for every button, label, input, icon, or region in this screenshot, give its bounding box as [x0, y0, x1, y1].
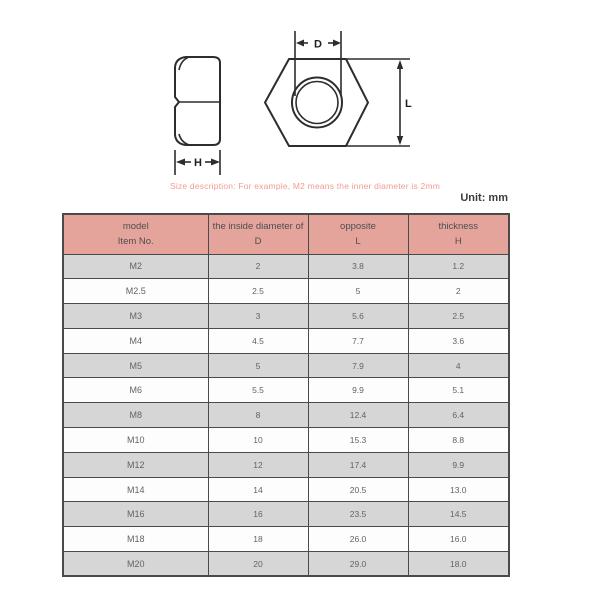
cell-h: 6.4: [408, 403, 509, 428]
cell-h: 18.0: [408, 552, 509, 577]
cell-h: 3.6: [408, 328, 509, 353]
cell-model: M12: [63, 452, 208, 477]
cell-d: 12: [208, 452, 308, 477]
table-row: M181826.016.0: [63, 527, 509, 552]
cell-d: 3: [208, 304, 308, 329]
header-inside-diameter-line2: D: [209, 236, 308, 247]
cell-model: M10: [63, 428, 208, 453]
cell-h: 1.2: [408, 254, 509, 279]
cell-l: 5.6: [308, 304, 408, 329]
arrow-left-icon: [296, 40, 304, 47]
spec-table: model Item No. the inside diameter of D …: [62, 213, 510, 577]
cell-d: 10: [208, 428, 308, 453]
cell-h: 9.9: [408, 452, 509, 477]
header-model-line2: Item No.: [64, 236, 208, 247]
table-row: M44.57.73.6: [63, 328, 509, 353]
cell-model: M4: [63, 328, 208, 353]
cell-d: 2.5: [208, 279, 308, 304]
cell-model: M16: [63, 502, 208, 527]
h-dimension-label: H: [194, 157, 202, 169]
header-inside-diameter-line1: the inside diameter of: [209, 221, 308, 232]
cell-model: M2.5: [63, 279, 208, 304]
cell-d: 8: [208, 403, 308, 428]
cell-model: M18: [63, 527, 208, 552]
cell-l: 23.5: [308, 502, 408, 527]
cell-h: 4: [408, 353, 509, 378]
cell-h: 5.1: [408, 378, 509, 403]
table-row: M223.81.2: [63, 254, 509, 279]
header-model-line1: model: [64, 221, 208, 232]
hole-inner-circle: [296, 82, 338, 124]
unit-label: Unit: mm: [460, 192, 508, 204]
nut-front-view: [265, 59, 368, 146]
cell-h: 14.5: [408, 502, 509, 527]
cell-h: 8.8: [408, 428, 509, 453]
cell-l: 9.9: [308, 378, 408, 403]
cell-l: 17.4: [308, 452, 408, 477]
table-row: M8812.46.4: [63, 403, 509, 428]
cell-d: 18: [208, 527, 308, 552]
cell-h: 16.0: [408, 527, 509, 552]
d-dimension-label: D: [314, 39, 322, 51]
arrow-right-icon: [333, 40, 341, 47]
table-row: M141420.513.0: [63, 477, 509, 502]
cell-d: 20: [208, 552, 308, 577]
header-thickness-line1: thickness: [409, 221, 509, 232]
cell-d: 5: [208, 353, 308, 378]
hole-outer-circle: [292, 78, 342, 128]
cell-h: 2: [408, 279, 509, 304]
cell-l: 3.8: [308, 254, 408, 279]
header-thickness-line2: H: [409, 236, 509, 247]
cell-model: M3: [63, 304, 208, 329]
cell-h: 13.0: [408, 477, 509, 502]
header-inside-diameter: the inside diameter of D: [208, 214, 308, 254]
cell-model: M20: [63, 552, 208, 577]
cell-l: 29.0: [308, 552, 408, 577]
arrow-down-icon: [397, 136, 403, 145]
nut-diagram: H D L: [150, 26, 420, 178]
header-model: model Item No.: [63, 214, 208, 254]
header-opposite-line1: opposite: [309, 221, 408, 232]
header-thickness: thickness H: [408, 214, 509, 254]
header-opposite: opposite L: [308, 214, 408, 254]
nut-side-view: [175, 57, 220, 145]
cell-l: 5: [308, 279, 408, 304]
arrow-left-icon: [176, 159, 185, 166]
table-row: M121217.49.9: [63, 452, 509, 477]
spec-table-body: M223.81.2M2.52.552M335.62.5M44.57.73.6M5…: [63, 254, 509, 576]
cell-h: 2.5: [408, 304, 509, 329]
cell-d: 2: [208, 254, 308, 279]
cell-d: 14: [208, 477, 308, 502]
table-row: M202029.018.0: [63, 552, 509, 577]
dimension-l: L: [347, 59, 412, 146]
cell-model: M8: [63, 403, 208, 428]
table-row: M161623.514.5: [63, 502, 509, 527]
cell-l: 20.5: [308, 477, 408, 502]
cell-l: 26.0: [308, 527, 408, 552]
hexagon-outline: [265, 59, 368, 146]
size-description: Size description: For example, M2 means …: [150, 181, 460, 191]
cell-model: M2: [63, 254, 208, 279]
table-row: M2.52.552: [63, 279, 509, 304]
table-row: M335.62.5: [63, 304, 509, 329]
cell-d: 5.5: [208, 378, 308, 403]
table-row: M65.59.95.1: [63, 378, 509, 403]
header-opposite-line2: L: [309, 236, 408, 247]
table-row: M557.94: [63, 353, 509, 378]
dimension-h: H: [175, 150, 220, 175]
product-spec-image: H D L Size description: For exa: [0, 0, 600, 600]
arrow-up-icon: [397, 60, 403, 69]
cell-model: M14: [63, 477, 208, 502]
cell-d: 16: [208, 502, 308, 527]
cell-l: 12.4: [308, 403, 408, 428]
table-row: M101015.38.8: [63, 428, 509, 453]
cell-l: 15.3: [308, 428, 408, 453]
cell-l: 7.7: [308, 328, 408, 353]
dimension-d: D: [295, 31, 341, 96]
cell-model: M5: [63, 353, 208, 378]
cell-l: 7.9: [308, 353, 408, 378]
cell-model: M6: [63, 378, 208, 403]
l-dimension-label: L: [405, 98, 412, 110]
arrow-right-icon: [211, 159, 220, 166]
cell-d: 4.5: [208, 328, 308, 353]
table-header-row: model Item No. the inside diameter of D …: [63, 214, 509, 254]
